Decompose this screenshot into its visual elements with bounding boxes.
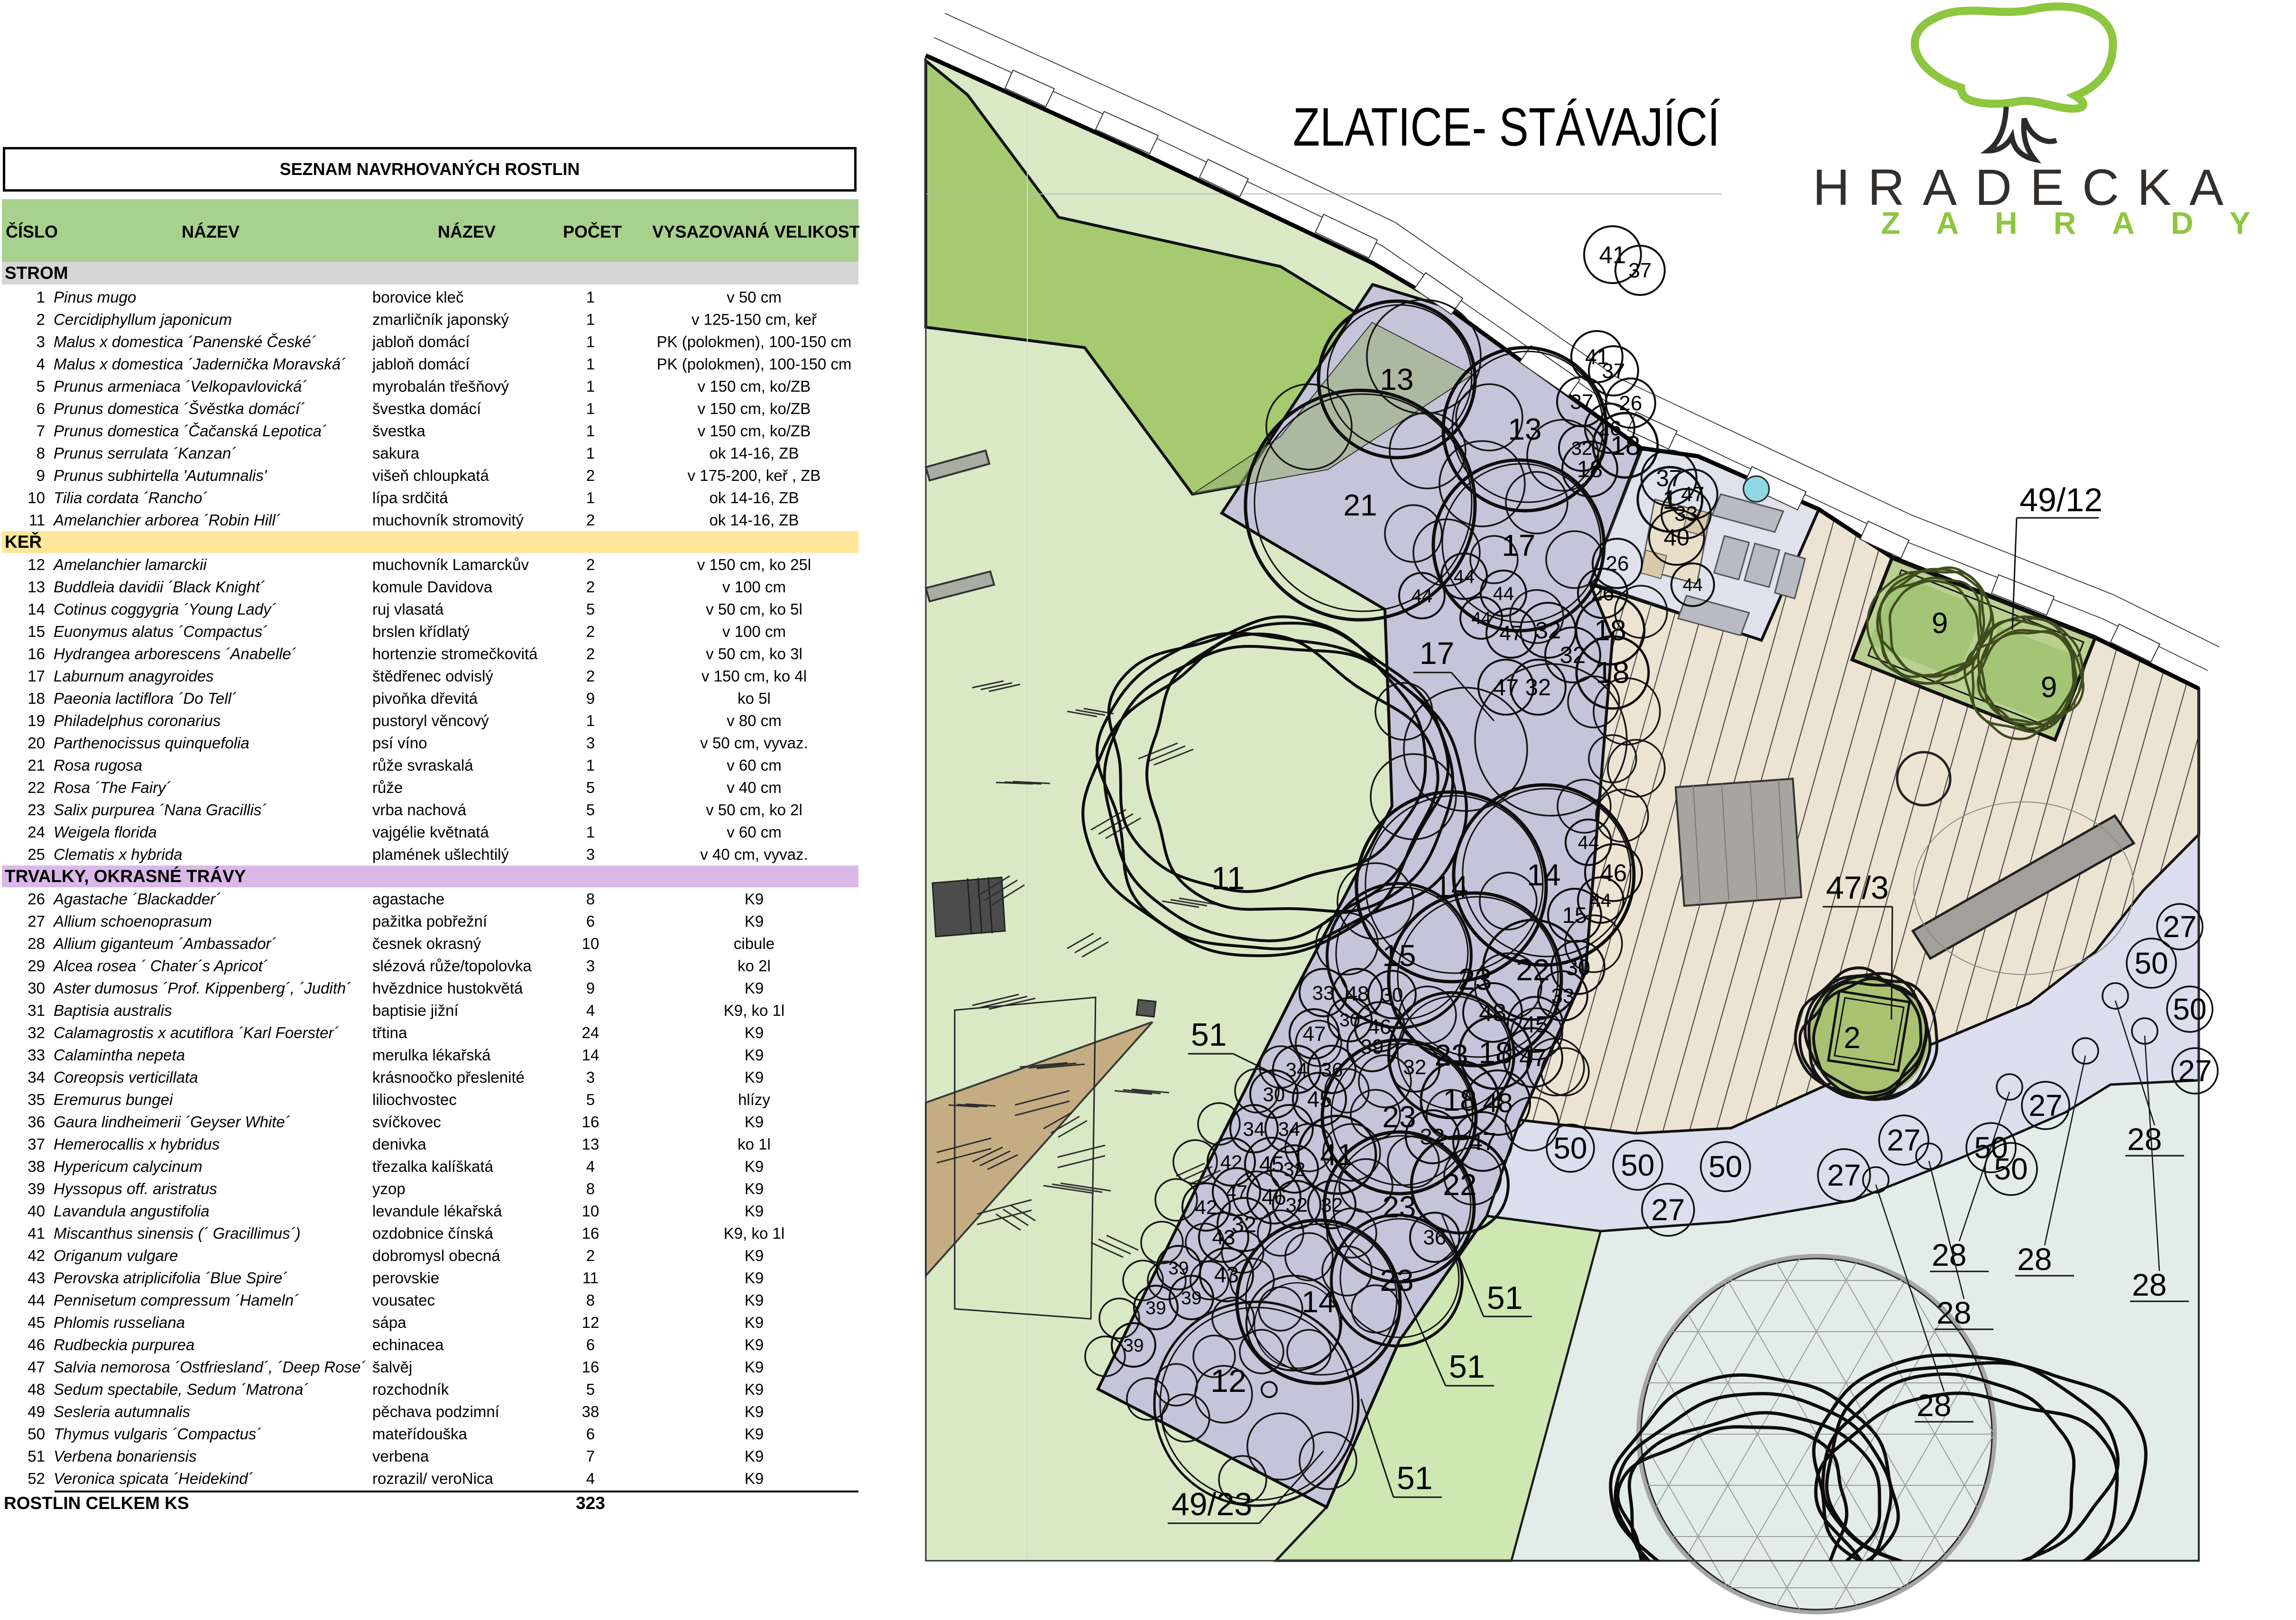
svg-text:32: 32: [1286, 1194, 1308, 1216]
svg-text:11: 11: [1211, 860, 1245, 896]
svg-text:33: 33: [1312, 982, 1335, 1004]
svg-text:47: 47: [1493, 675, 1519, 700]
svg-text:27: 27: [2178, 1054, 2212, 1088]
svg-text:49/23: 49/23: [1171, 1486, 1252, 1522]
svg-text:28: 28: [1917, 1388, 1951, 1423]
svg-text:30: 30: [1339, 1010, 1360, 1031]
svg-text:32: 32: [1525, 675, 1551, 700]
svg-text:43: 43: [1212, 1226, 1236, 1249]
svg-text:26: 26: [1619, 392, 1642, 415]
svg-text:17: 17: [1420, 635, 1454, 671]
svg-text:36: 36: [1321, 1059, 1343, 1081]
svg-text:ZAHRADY: ZAHRADY: [1881, 205, 2287, 240]
svg-text:15: 15: [1382, 939, 1416, 973]
svg-text:32: 32: [1403, 1056, 1427, 1079]
svg-text:34: 34: [1278, 1118, 1300, 1140]
svg-text:50: 50: [2173, 992, 2206, 1026]
svg-text:27: 27: [2163, 910, 2196, 944]
svg-text:45: 45: [1307, 1086, 1332, 1112]
svg-text:18: 18: [1594, 614, 1626, 646]
svg-text:48: 48: [1483, 1088, 1512, 1118]
svg-text:32: 32: [1321, 1194, 1343, 1216]
svg-text:51: 51: [1397, 1460, 1433, 1496]
svg-text:33: 33: [1675, 502, 1698, 525]
svg-text:37: 37: [1629, 259, 1652, 282]
svg-text:28: 28: [1936, 1295, 1971, 1330]
svg-text:18: 18: [1443, 1083, 1476, 1117]
svg-text:43: 43: [1214, 1262, 1239, 1287]
svg-text:15: 15: [1562, 902, 1587, 928]
svg-text:44: 44: [1454, 566, 1475, 587]
svg-text:50: 50: [2134, 946, 2168, 980]
svg-text:ZLATICE- STÁVAJÍCÍ: ZLATICE- STÁVAJÍCÍ: [1293, 97, 1720, 157]
svg-text:18: 18: [1595, 655, 1629, 690]
svg-text:32: 32: [1535, 618, 1561, 644]
svg-text:39: 39: [1145, 1298, 1166, 1318]
svg-text:28: 28: [2132, 1267, 2167, 1302]
svg-text:22: 22: [1443, 1168, 1476, 1202]
svg-text:51: 51: [1191, 1017, 1227, 1053]
svg-text:21: 21: [1343, 488, 1377, 522]
svg-text:50: 50: [1708, 1150, 1742, 1184]
svg-text:28: 28: [2127, 1122, 2162, 1157]
svg-text:22: 22: [1516, 953, 1549, 987]
svg-text:18: 18: [1478, 1036, 1512, 1070]
svg-text:47: 47: [1500, 622, 1523, 645]
svg-text:47: 47: [1519, 1044, 1547, 1072]
svg-text:27: 27: [1827, 1158, 1861, 1192]
svg-text:28: 28: [2017, 1242, 2052, 1277]
svg-text:18: 18: [1577, 457, 1603, 482]
svg-text:32: 32: [1283, 1158, 1306, 1180]
svg-text:27: 27: [1651, 1193, 1685, 1227]
svg-text:12: 12: [1210, 1363, 1246, 1399]
svg-text:9: 9: [1932, 607, 1948, 640]
svg-text:14: 14: [1527, 858, 1560, 892]
svg-text:42: 42: [1220, 1151, 1243, 1173]
svg-text:51: 51: [1449, 1349, 1485, 1385]
svg-text:39: 39: [1181, 1288, 1201, 1308]
svg-text:17: 17: [1502, 528, 1535, 562]
svg-text:27: 27: [2029, 1088, 2062, 1123]
svg-text:50: 50: [1621, 1148, 1654, 1182]
svg-text:9: 9: [2041, 671, 2057, 704]
svg-text:44: 44: [1493, 583, 1514, 604]
svg-text:50: 50: [1553, 1131, 1587, 1165]
svg-text:51: 51: [1487, 1280, 1523, 1316]
svg-text:37: 37: [1570, 390, 1594, 414]
svg-text:47/3: 47/3: [1826, 870, 1889, 906]
svg-text:47: 47: [1303, 1022, 1326, 1046]
svg-text:48: 48: [1346, 982, 1369, 1005]
svg-text:49/12: 49/12: [2019, 481, 2102, 518]
svg-text:26: 26: [1606, 552, 1629, 575]
svg-text:30: 30: [1263, 1083, 1285, 1105]
svg-text:13: 13: [1508, 412, 1541, 446]
svg-text:27: 27: [1887, 1123, 1920, 1157]
svg-text:23: 23: [1382, 1100, 1416, 1134]
svg-text:44: 44: [1683, 575, 1703, 595]
svg-text:39: 39: [1123, 1335, 1143, 1356]
svg-text:40: 40: [1664, 525, 1690, 551]
svg-text:2: 2: [1844, 1021, 1861, 1055]
svg-text:44: 44: [1411, 586, 1433, 607]
svg-text:34: 34: [1243, 1118, 1265, 1140]
svg-text:26: 26: [1591, 582, 1614, 605]
